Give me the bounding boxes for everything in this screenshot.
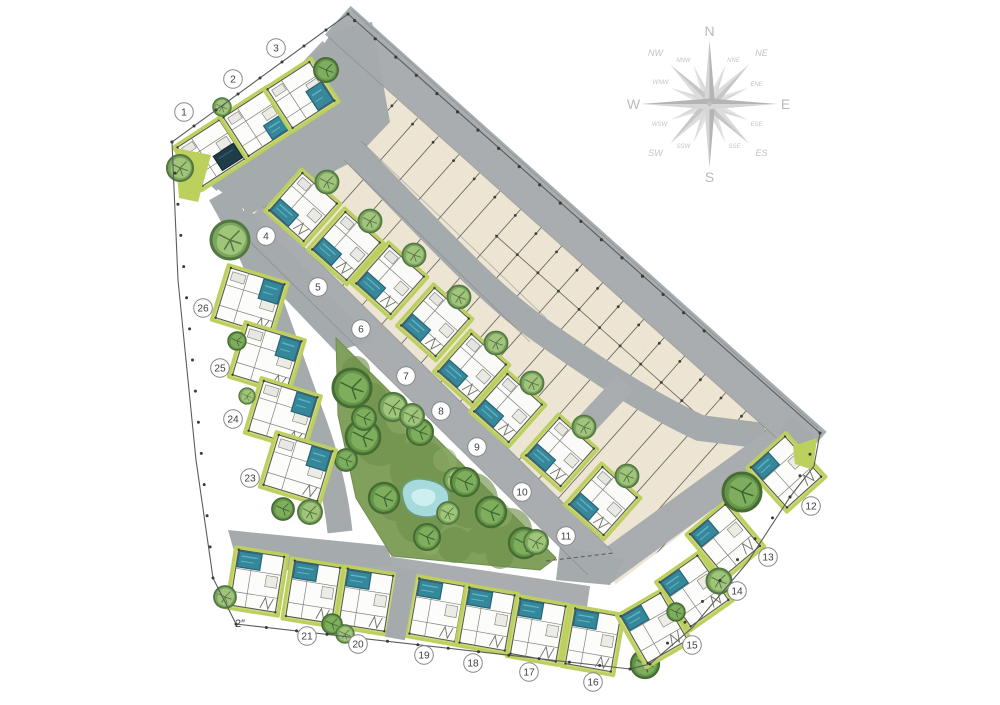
svg-text:25: 25 [214,364,226,375]
svg-text:23: 23 [244,474,256,485]
svg-text:21: 21 [301,632,313,643]
svg-text:24: 24 [227,415,239,426]
svg-text:WNW: WNW [653,80,670,86]
svg-text:WSW: WSW [652,122,669,128]
svg-text:1: 1 [181,108,187,119]
svg-text:6: 6 [358,325,364,336]
svg-text:11: 11 [561,532,572,543]
svg-text:NNE: NNE [727,58,741,64]
svg-text:7: 7 [403,372,409,383]
svg-text:9: 9 [474,443,480,454]
svg-text:N: N [704,23,714,39]
svg-text:8: 8 [438,407,444,418]
svg-text:12: 12 [805,502,817,513]
svg-text:16: 16 [587,678,599,689]
svg-text:13: 13 [762,553,774,564]
svg-text:15: 15 [686,641,698,652]
svg-text:19: 19 [418,651,430,662]
svg-text:W: W [627,96,641,112]
svg-text:18: 18 [467,659,479,670]
svg-text:NNW: NNW [676,58,692,64]
svg-text:14: 14 [731,587,743,598]
svg-text:5: 5 [315,283,321,294]
svg-text:ESE: ESE [750,122,763,128]
svg-text:10: 10 [516,488,528,499]
svg-text:20: 20 [352,640,364,651]
svg-text:NE: NE [755,48,768,58]
svg-text:26: 26 [197,304,209,315]
svg-text:SSW: SSW [677,144,692,150]
svg-text:3: 3 [273,44,279,55]
svg-text:S: S [705,169,714,185]
svg-text:4: 4 [263,232,269,243]
svg-text:SSE: SSE [728,144,741,150]
svg-text:SW: SW [648,148,664,158]
svg-text:2: 2 [230,75,236,86]
svg-text:ENE: ENE [750,82,763,88]
svg-text:E: E [781,96,790,112]
svg-text:NW: NW [648,48,664,58]
svg-text:17: 17 [523,668,535,679]
svg-text:ES: ES [755,148,767,158]
svg-text:2″: 2″ [235,618,245,630]
